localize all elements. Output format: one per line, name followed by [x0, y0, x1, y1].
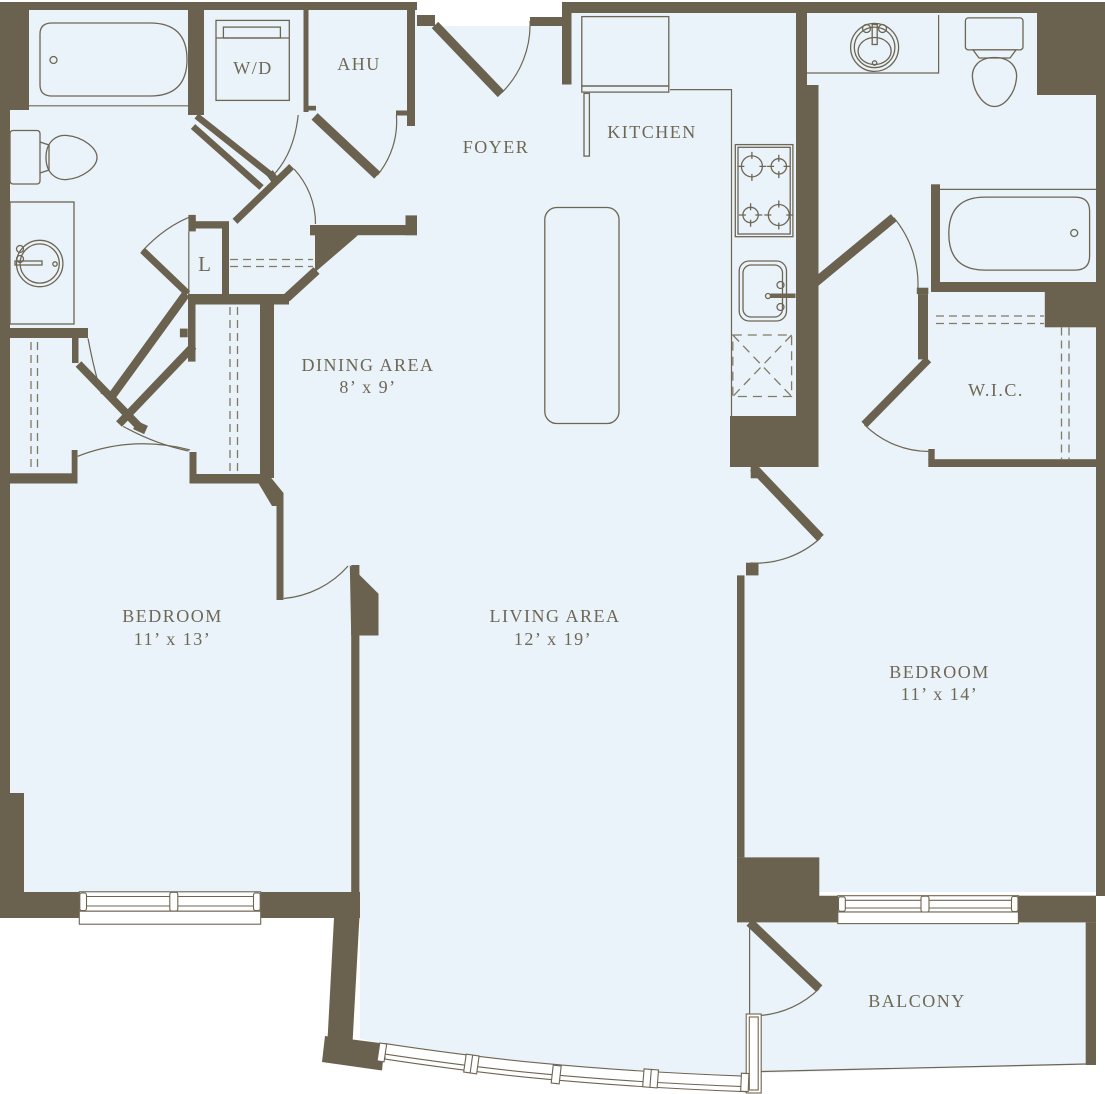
- svg-text:8’ x 9’: 8’ x 9’: [339, 377, 396, 397]
- svg-text:BALCONY: BALCONY: [868, 991, 966, 1011]
- svg-text:FOYER: FOYER: [463, 137, 530, 157]
- svg-text:W.I.C.: W.I.C.: [968, 380, 1024, 400]
- svg-text:L: L: [198, 252, 211, 276]
- svg-text:LIVING AREA: LIVING AREA: [490, 606, 621, 626]
- svg-text:AHU: AHU: [337, 54, 381, 74]
- svg-text:W/D: W/D: [233, 58, 273, 78]
- svg-text:BEDROOM: BEDROOM: [122, 606, 223, 626]
- svg-text:DINING AREA: DINING AREA: [302, 355, 435, 375]
- svg-text:11’ x 13’: 11’ x 13’: [134, 629, 211, 649]
- svg-text:11’ x 14’: 11’ x 14’: [901, 684, 978, 704]
- svg-text:KITCHEN: KITCHEN: [607, 122, 697, 142]
- svg-text:12’ x 19’: 12’ x 19’: [514, 629, 592, 649]
- svg-text:BEDROOM: BEDROOM: [889, 662, 990, 682]
